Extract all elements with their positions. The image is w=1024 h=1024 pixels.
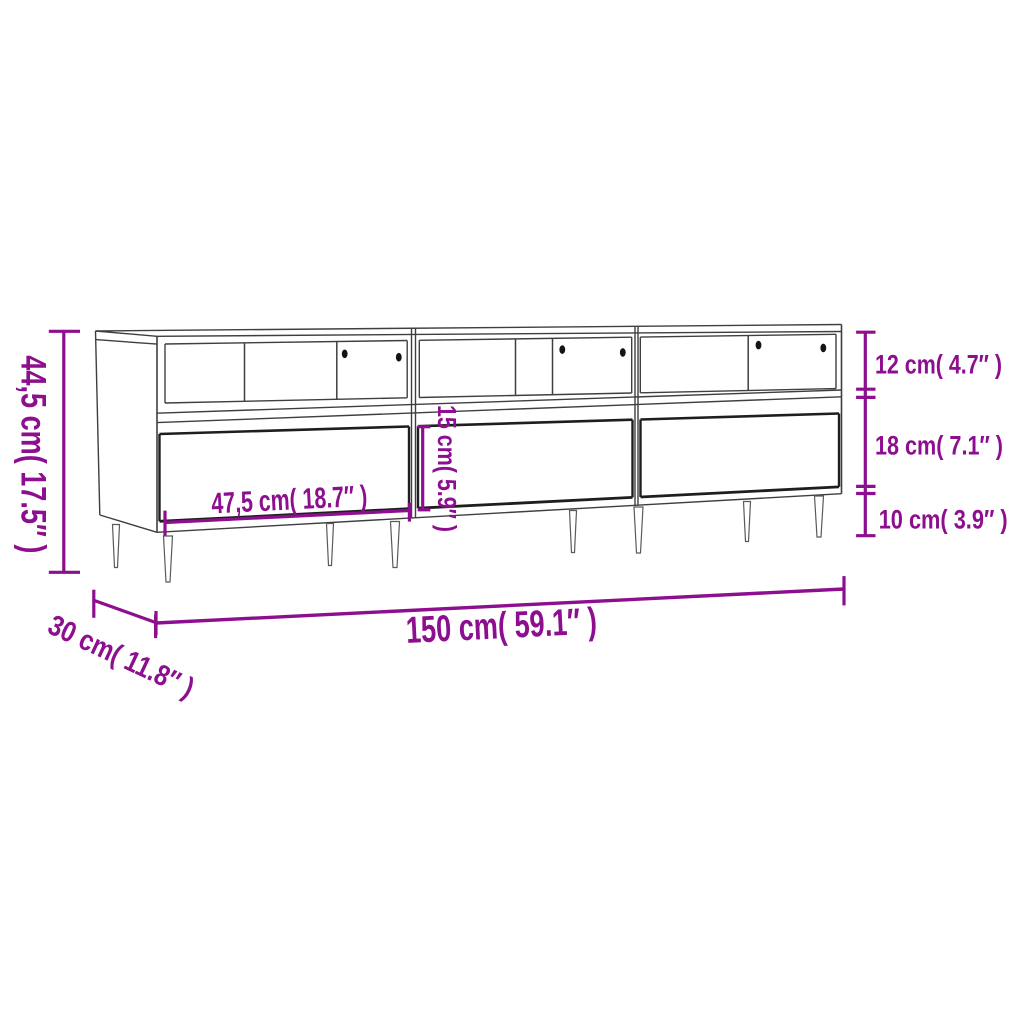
svg-text:18 cm( 7.1″ ): 18 cm( 7.1″ ) [875, 431, 1003, 461]
svg-text:15 cm( 5.9″ ): 15 cm( 5.9″ ) [432, 405, 462, 532]
svg-text:10 cm( 3.9″ ): 10 cm( 3.9″ ) [879, 504, 1008, 534]
svg-text:12 cm( 4.7″ ): 12 cm( 4.7″ ) [875, 350, 1002, 380]
svg-text:44,5 cm( 17.5″ ): 44,5 cm( 17.5″ ) [13, 355, 52, 553]
